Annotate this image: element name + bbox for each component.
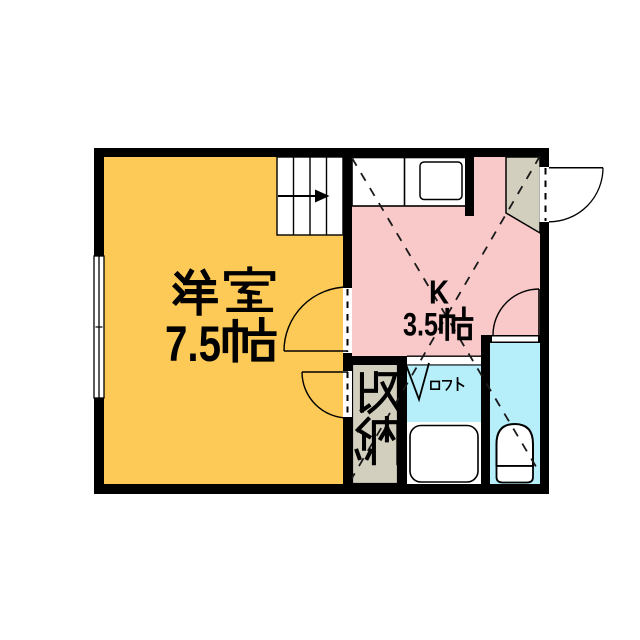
svg-text:7.5: 7.5	[165, 316, 221, 372]
svg-text:K: K	[429, 274, 449, 311]
svg-text:3.5: 3.5	[403, 307, 438, 343]
